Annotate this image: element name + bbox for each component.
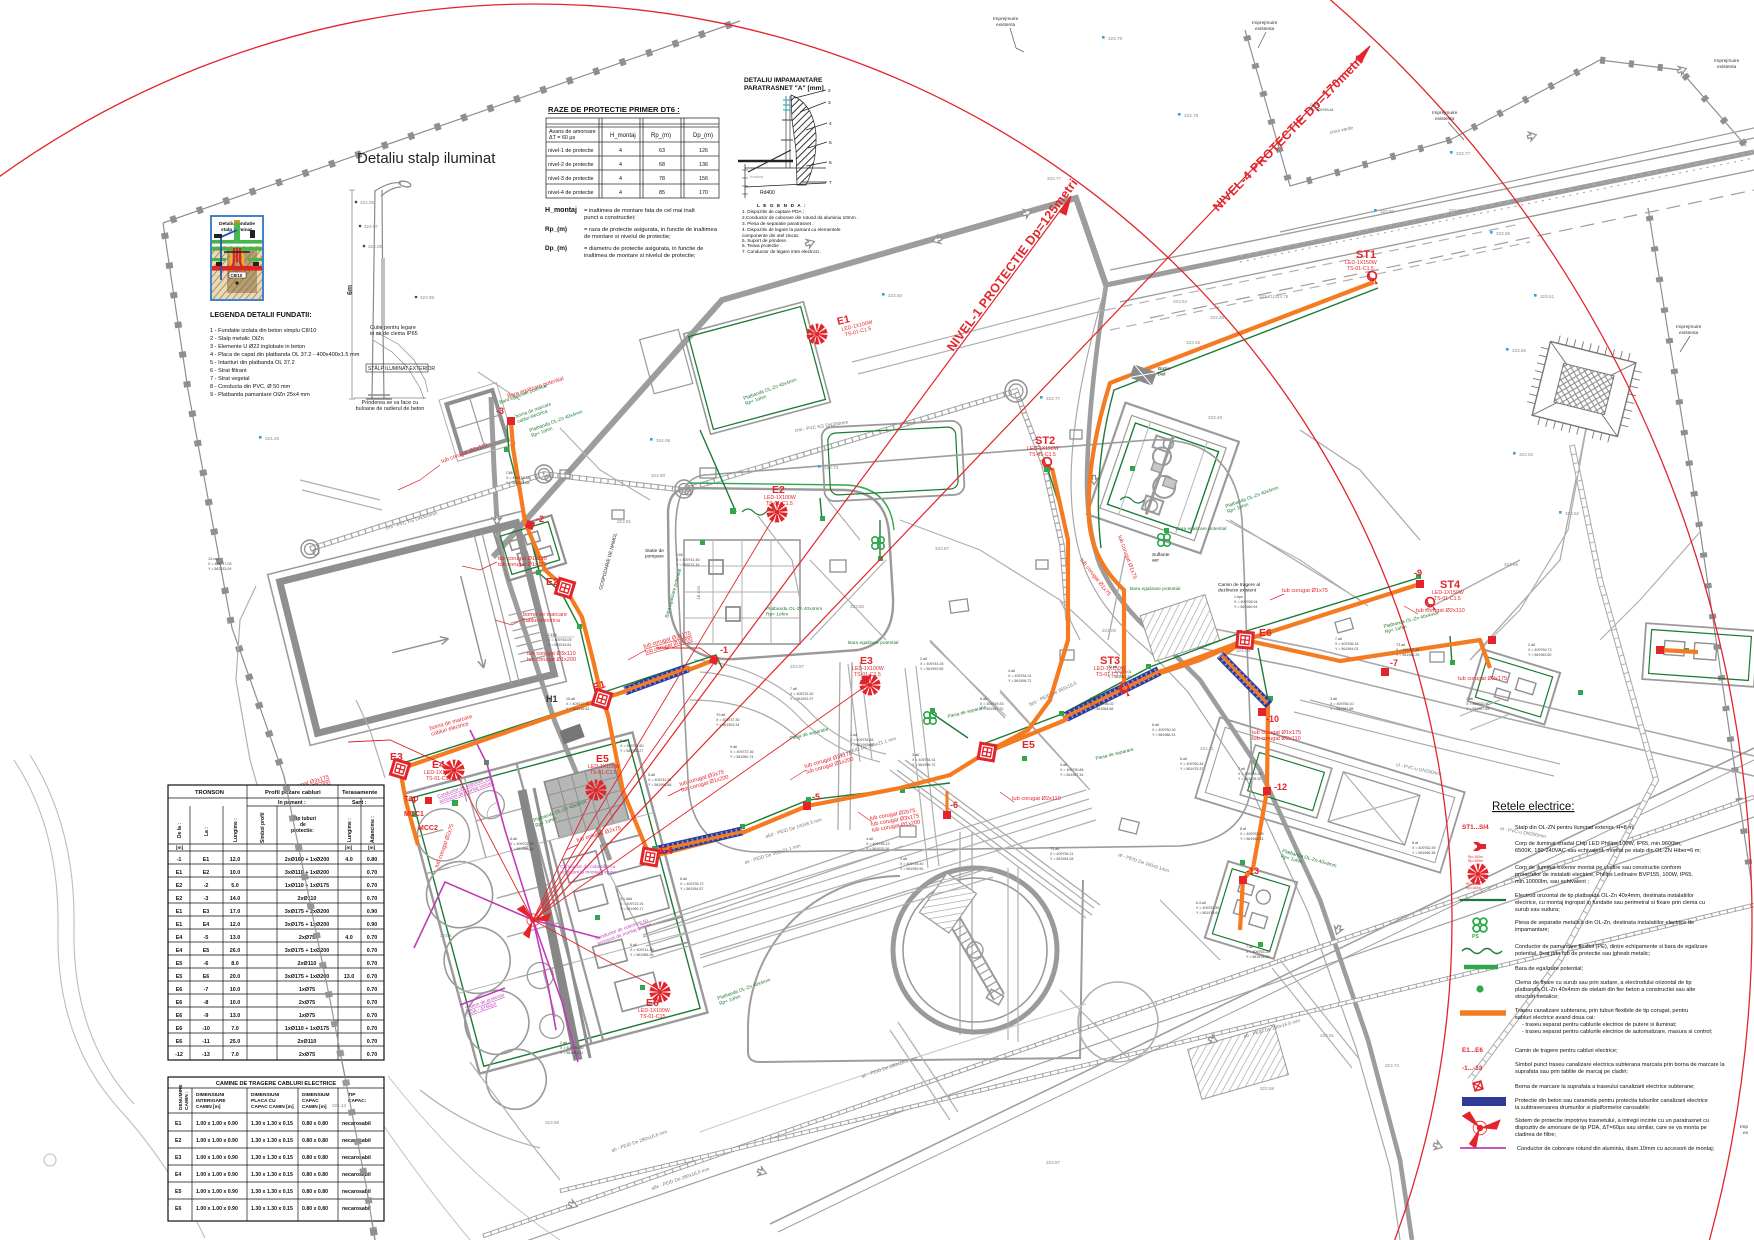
svg-text:X = 409760.44: X = 409760.44 [1180, 762, 1203, 766]
svg-text:Bazin: Bazin [1158, 366, 1170, 372]
svg-text:Y = 561954.28: Y = 561954.28 [1050, 857, 1073, 861]
svg-text:PS: PS [1472, 934, 1479, 940]
svg-text:E2: E2 [176, 883, 183, 889]
svg-text:tub corugat Ø1x75: tub corugat Ø1x75 [1282, 588, 1328, 594]
svg-text:323.91: 323.91 [1320, 1033, 1334, 1038]
svg-text:Clema de fixare cu surub sau p: Clema de fixare cu surub sau prin sudare… [1515, 980, 1692, 986]
svg-text:[m]: [m] [345, 845, 353, 850]
svg-text:31.a6: 31.a6 [1108, 665, 1117, 669]
svg-text:Rd400: Rd400 [760, 190, 775, 196]
svg-text:-1: -1 [177, 857, 182, 863]
svg-text:4: 4 [619, 176, 622, 182]
svg-text:CAMIN :: CAMIN : [184, 1091, 190, 1110]
svg-text:-7: -7 [1390, 658, 1398, 668]
svg-text:X = 409737.36: X = 409737.36 [730, 750, 753, 754]
svg-text:-10: -10 [202, 1026, 210, 1032]
svg-text:-11: -11 [202, 1039, 210, 1045]
svg-text:E2: E2 [175, 1138, 181, 1144]
svg-text:Conductor de coborare cu: Conductor de coborare cu [560, 864, 616, 870]
svg-text:6. Teava protectie .: 6. Teava protectie . [742, 243, 782, 248]
svg-text:3 - Elemente U Ø22 inglobate i: 3 - Elemente U Ø22 inglobate in beton [210, 344, 305, 350]
svg-text:TS-01-C1.5: TS-01-C1.5 [1029, 452, 1056, 458]
svg-text:X = 409718.33: X = 409718.33 [506, 476, 529, 480]
svg-text:E5: E5 [203, 948, 210, 954]
svg-text:-10: -10 [1266, 714, 1279, 724]
svg-text:4.0: 4.0 [345, 935, 353, 941]
svg-text:-2: -2 [204, 883, 209, 889]
svg-text:TS-01-C1.5: TS-01-C1.5 [766, 501, 793, 507]
svg-text:-12: -12 [1274, 782, 1287, 792]
svg-text:ST1...SI4: ST1...SI4 [1462, 824, 1489, 831]
svg-text:Y = 561991.07: Y = 561991.07 [790, 697, 813, 701]
svg-text:X = 409721.91: X = 409721.91 [620, 902, 643, 906]
svg-text:existenta: existenta [1435, 116, 1455, 122]
svg-text:electrice, cu montaj ingropat: electrice, cu montaj ingropat in fundati… [1515, 900, 1705, 906]
svg-text:Rp=160m: Rp=160m [1468, 859, 1483, 863]
svg-text:biol: biol [1158, 372, 1165, 378]
svg-text:Platbanda OL-Zn 40x4mm: Platbanda OL-Zn 40x4mm [766, 606, 822, 612]
svg-text:MCC1: MCC1 [404, 811, 424, 818]
svg-text:E6: E6 [175, 1206, 181, 1212]
svg-text:0.70: 0.70 [367, 883, 378, 889]
svg-text:TRONSON: TRONSON [195, 790, 224, 796]
svg-text:323.79: 323.79 [1108, 36, 1122, 41]
svg-text:ex: ex [1743, 1131, 1749, 1136]
svg-text:0.70: 0.70 [367, 1026, 378, 1032]
svg-text:7. Conductor de legare intre e: 7. Conductor de legare intre electrozi . [742, 249, 821, 254]
svg-text:X = 409737.30: X = 409737.30 [716, 718, 739, 722]
svg-text:DENUMIRE: DENUMIRE [178, 1084, 184, 1110]
svg-text:E2: E2 [546, 576, 559, 588]
svg-text:pompare: pompare [645, 554, 664, 560]
svg-text:323.80: 323.80 [1380, 209, 1394, 214]
svg-text:Y = 582015.81: Y = 582015.81 [548, 643, 571, 647]
svg-text:Y = 562033.09: Y = 562033.09 [208, 567, 231, 571]
svg-text:-9: -9 [204, 1013, 209, 1019]
svg-text:0.70: 0.70 [367, 987, 378, 993]
svg-text:Y = 582013.15: Y = 582013.15 [676, 563, 699, 567]
svg-text:-1: -1 [720, 645, 728, 655]
svg-text:cabluri electrice avand doua c: cabluri electrice avand doua cai: [1515, 1015, 1595, 1021]
svg-text:X = 409766.18: X = 409766.18 [1335, 642, 1358, 646]
svg-text:Y = 561988.29: Y = 561988.29 [1396, 653, 1419, 657]
svg-text:323.56: 323.56 [545, 1120, 559, 1125]
svg-text:E4: E4 [660, 845, 673, 857]
svg-text:Y = 561998.72: Y = 561998.72 [1008, 679, 1031, 683]
svg-text:-2: -2 [536, 514, 544, 524]
svg-text:85: 85 [659, 190, 665, 196]
svg-text:3: 3 [828, 100, 831, 106]
svg-text:potential, fixat prin tub de: potential, fixat prin tub de protectie s… [1515, 951, 1651, 957]
svg-text:7.a6: 7.a6 [1466, 697, 1473, 701]
svg-text:Bara egalizare potential: Bara egalizare potential [1176, 526, 1226, 532]
svg-text:1.00 x 1.00 x 0.90: 1.00 x 1.00 x 0.90 [196, 1206, 238, 1212]
svg-text:8.af: 8.af [1240, 827, 1246, 831]
svg-text:PLACA CU: PLACA CU [251, 1098, 276, 1104]
svg-text:INTERIOARE: INTERIOARE [196, 1098, 226, 1104]
svg-text:Traseu canalizare subterana,: Traseu canalizare subterana, prin tuburi… [1515, 1008, 1688, 1014]
svg-text:-3: -3 [496, 406, 504, 416]
svg-text:Stalp din OL-ZN pentru ilumina: Stalp din OL-ZN pentru iluminat exterior… [1515, 825, 1635, 831]
svg-text:tub corugat Ø2x175: tub corugat Ø2x175 [1458, 676, 1507, 682]
svg-text:1xØ75: 1xØ75 [299, 987, 315, 993]
svg-text:Y0.a6: Y0.a6 [716, 713, 725, 717]
svg-text:4.a6: 4.a6 [866, 837, 873, 841]
svg-text:ΔT = 60 μs: ΔT = 60 μs [549, 135, 576, 141]
svg-text:2xØ75: 2xØ75 [299, 935, 315, 941]
svg-text:X = 409741.91: X = 409741.91 [648, 778, 671, 782]
svg-text:Corp de iluminat exterior mont: Corp de iluminat exterior montat pe clad… [1515, 865, 1682, 871]
svg-text:TS-01-C1.5: TS-01-C1.5 [854, 672, 881, 678]
svg-text:X = 409750.84: X = 409750.84 [1060, 768, 1083, 772]
svg-text:323.62: 323.62 [1519, 452, 1533, 457]
svg-text:323.5: 323.5 [440, 933, 452, 938]
svg-text:X = 409783.64: X = 409783.64 [1310, 108, 1333, 112]
svg-text:Y = 561949.33: Y = 561949.33 [1240, 837, 1263, 841]
svg-text:8 - Conducta din PVC, Ø 50 mm: 8 - Conducta din PVC, Ø 50 mm [210, 384, 291, 390]
svg-text:X = 409763.09: X = 409763.09 [1240, 832, 1263, 836]
svg-text:E5: E5 [175, 1189, 181, 1195]
svg-text:Y = 562016.63: Y = 562016.63 [566, 707, 589, 711]
svg-text:4.a6: 4.a6 [900, 857, 907, 861]
svg-text:4.a6: 4.a6 [1008, 669, 1015, 673]
svg-text:De la :: De la : [177, 823, 183, 838]
svg-text:C164: C164 [548, 633, 557, 637]
svg-text:323.87: 323.87 [1046, 1160, 1060, 1165]
svg-text:Lungime :: Lungime : [347, 818, 353, 842]
svg-text:4 - Placa de capat din platban: 4 - Placa de capat din platbanda OL 37.2… [210, 352, 360, 358]
svg-text:DIMENSIUM: DIMENSIUM [302, 1092, 329, 1098]
svg-text:structuri metalice;: structuri metalice; [1515, 994, 1559, 1000]
svg-text:Y = 581993.66: Y = 581993.66 [648, 783, 671, 787]
svg-text:tub corugat Ø1x200: tub corugat Ø1x200 [527, 657, 576, 663]
svg-text:aer: aer [1152, 558, 1159, 564]
svg-text:TS-01-C1.5: TS-01-C1.5 [590, 770, 617, 776]
svg-text:-12: -12 [175, 1052, 183, 1058]
svg-text:E3: E3 [175, 1155, 181, 1161]
svg-text:6.a6: 6.a6 [1152, 723, 1159, 727]
svg-text:X = 409744.25: X = 409744.25 [920, 662, 943, 666]
svg-text:324.05: 324.05 [368, 244, 382, 249]
svg-text:323.74: 323.74 [1385, 1063, 1399, 1068]
svg-text:324.00: 324.00 [1102, 628, 1116, 633]
svg-text:16.cmi: 16.cmi [696, 586, 702, 600]
svg-text:322.71|323.75: 322.71|323.75 [1259, 294, 1289, 299]
svg-text:2: 2 [828, 88, 831, 94]
svg-text:0.90: 0.90 [367, 922, 378, 928]
svg-text:323.99: 323.99 [420, 295, 434, 300]
svg-text:min.10000lm, sau echivalent ;: min.10000lm, sau echivalent ; [1515, 879, 1589, 885]
svg-text:nivel-1 de protectie: nivel-1 de protectie [548, 148, 594, 154]
svg-text:Dp_(m): Dp_(m) [693, 133, 713, 139]
svg-text:Y = 561984.03: Y = 561984.03 [1335, 647, 1358, 651]
svg-text:Y = 581984.27: Y = 581984.27 [620, 749, 643, 753]
svg-text:Corp de iluminat stradal Chip: Corp de iluminat stradal Chip LED Philip… [1515, 841, 1682, 847]
svg-text:necarosabil: necarosabil [342, 1155, 371, 1161]
svg-text:1.30 x 1.30 x 0.15: 1.30 x 1.30 x 0.15 [251, 1138, 293, 1144]
svg-text:= diametru de protectie asigur: = diametru de protectie asigurata, in fu… [584, 246, 703, 252]
svg-text:9.a6: 9.a6 [730, 745, 737, 749]
svg-text:E1: E1 [175, 1121, 181, 1127]
svg-text:Profil pozare cabluri: Profil pozare cabluri [265, 790, 321, 796]
svg-text:existenta: existenta [1255, 26, 1275, 32]
svg-text:3xØ175 + 1xØ200: 3xØ175 + 1xØ200 [285, 974, 330, 980]
svg-text:7: 7 [829, 180, 832, 186]
svg-text:X = 409726.72: X = 409726.72 [680, 882, 703, 886]
svg-text:C48: C48 [676, 553, 683, 557]
svg-text:Imprejmuire: Imprejmuire [993, 16, 1019, 22]
svg-text:E1: E1 [203, 857, 210, 863]
svg-text:0.70: 0.70 [367, 896, 378, 902]
svg-text:0.70: 0.70 [367, 1013, 378, 1019]
svg-text:Y = 581987.88: Y = 581987.88 [1330, 707, 1353, 711]
svg-text:X = 409767.82: X = 409767.82 [1196, 906, 1219, 910]
svg-text:[m]: [m] [368, 845, 376, 850]
svg-text:X = 409763.60: X = 409763.60 [1466, 702, 1489, 706]
svg-text:323.77: 323.77 [1456, 151, 1470, 156]
svg-text:323.55: 323.55 [1512, 348, 1526, 353]
svg-text:X = 409759.01: X = 409759.01 [1108, 670, 1131, 674]
svg-text:X = 409763.26: X = 409763.26 [1246, 950, 1269, 954]
svg-text:323.77: 323.77 [1047, 176, 1061, 181]
svg-text:dispozitiv de amorsare de tip: dispozitiv de amorsare de tip PDA, ΔT=60… [1515, 1125, 1707, 1131]
svg-text:buloane de radierul de beton: buloane de radierul de beton [356, 406, 425, 412]
svg-text:0.80: 0.80 [367, 857, 378, 863]
svg-text:4: 4 [619, 190, 622, 196]
svg-text:1.30 x 1.30 x 0.15: 1.30 x 1.30 x 0.15 [251, 1155, 293, 1161]
svg-text:Y = 561978.64: Y = 561978.64 [1196, 911, 1219, 915]
svg-text:3xØ175 + 1xØ200: 3xØ175 + 1xØ200 [285, 948, 330, 954]
svg-text:-3: -3 [204, 896, 209, 902]
svg-text:1.30 x 1.30 x 0.15: 1.30 x 1.30 x 0.15 [251, 1189, 293, 1195]
svg-text:T1.a6: T1.a6 [1050, 847, 1059, 851]
svg-text:9 - Platbanda pamantare OlZn 2: 9 - Platbanda pamantare OlZn 25x4 mm [210, 392, 310, 398]
svg-text:Y = 581988.33: Y = 581988.33 [1152, 733, 1175, 737]
svg-text:2xØ160 + 1xØ200: 2xØ160 + 1xØ200 [285, 857, 330, 863]
svg-text:3xØ175 + 1xØ200: 3xØ175 + 1xØ200 [285, 922, 330, 928]
svg-text:X = 409762.39: X = 409762.39 [1412, 846, 1435, 850]
svg-text:0.70: 0.70 [367, 935, 378, 941]
svg-text:Y = 561967.69: Y = 561967.69 [1466, 707, 1489, 711]
svg-text:E1...E6: E1...E6 [1462, 1047, 1483, 1054]
svg-text:3.a6: 3.a6 [1330, 697, 1337, 701]
svg-text:Conductor de pamantare flexibi: Conductor de pamantare flexibil (PE), di… [1515, 944, 1708, 950]
svg-text:X = 409734.31: X = 409734.31 [912, 758, 935, 762]
svg-text:impamantare;: impamantare; [1515, 927, 1550, 933]
svg-text:CAMINE DE TRAGERE CABLURI ELEC: CAMINE DE TRAGERE CABLURI ELECTRICE [216, 1081, 337, 1087]
svg-text:Simbol punct traseu canalizare: Simbol punct traseu canalizare electrica… [1515, 1062, 1725, 1068]
svg-text:-13: -13 [1246, 866, 1259, 876]
svg-text:Y = 561987.34: Y = 561987.34 [1060, 773, 1083, 777]
svg-text:X = 409739.30: X = 409739.30 [560, 1046, 583, 1050]
svg-text:68: 68 [659, 162, 665, 168]
svg-text:Y = 561959.90: Y = 561959.90 [900, 867, 923, 871]
svg-text:323.52: 323.52 [1173, 299, 1187, 304]
svg-text:2.a6: 2.a6 [560, 1041, 567, 1045]
svg-text:Terasamente: Terasamente [342, 790, 378, 796]
svg-text:E4: E4 [176, 948, 183, 954]
svg-text:7.a6: 7.a6 [1238, 767, 1245, 771]
svg-text:Y = 562023.68: Y = 562023.68 [506, 481, 529, 485]
svg-text:-6: -6 [950, 800, 958, 810]
svg-text:tub corugat Ø2x110: tub corugat Ø2x110 [1252, 736, 1301, 742]
svg-text:[m]: [m] [176, 845, 184, 850]
svg-text:RAZE DE PROTECTIE PRIMER DT6 :: RAZE DE PROTECTIE PRIMER DT6 : [548, 105, 680, 114]
svg-text:X = 409769.73: X = 409769.73 [1528, 648, 1551, 652]
svg-text:0.70: 0.70 [367, 948, 378, 954]
svg-text:PARATRASNET "A" [mm]: PARATRASNET "A" [mm] [744, 85, 824, 92]
svg-text:20.0: 20.0 [230, 974, 241, 980]
svg-text:Dp_(m): Dp_(m) [545, 245, 567, 252]
svg-text:E6: E6 [176, 987, 183, 993]
svg-text:STÂLP ILUMINAT EXTERIOR: STÂLP ILUMINAT EXTERIOR [368, 365, 435, 372]
svg-text:accesorii la montaj incluse: accesorii la montaj incluse [560, 870, 616, 876]
svg-text:X = 409702.39: X = 409702.39 [510, 842, 533, 846]
svg-text:X = 409731.62: X = 409731.62 [790, 692, 813, 696]
svg-text:LEGENDA DETALII FUNDATII:: LEGENDA DETALII FUNDATII: [210, 310, 312, 319]
svg-text:In pamant :: In pamant : [278, 800, 306, 806]
svg-text:Y = 581960.74: Y = 581960.74 [730, 755, 753, 759]
svg-text:Protectie din beton sau carami: Protectie din beton sau caramida pentru … [1515, 1098, 1708, 1104]
svg-text:E1: E1 [176, 922, 183, 928]
svg-text:E2: E2 [203, 870, 210, 876]
svg-text:Piesa de separatie metalica di: Piesa de separatie metalica din OL-Zn, d… [1515, 920, 1694, 926]
svg-text:5.a6: 5.a6 [648, 773, 655, 777]
svg-text:Y = 561984.58: Y = 561984.58 [1090, 707, 1113, 711]
svg-text:Conductor de coborare rotund d: Conductor de coborare rotund din alumini… [1517, 1146, 1715, 1152]
svg-text:X = 409753.09: X = 409753.09 [548, 638, 571, 642]
svg-text:E3: E3 [203, 909, 210, 915]
svg-text:DIMENSIUNI: DIMENSIUNI [251, 1092, 280, 1098]
svg-text:tub corugat Ø2x110: tub corugat Ø2x110 [1012, 796, 1061, 802]
svg-text:TS-01-C1.5: TS-01-C1.5 [426, 776, 453, 782]
svg-text:323.73: 323.73 [824, 465, 838, 470]
svg-text:3xØ175 + 2xØ200: 3xØ175 + 2xØ200 [285, 909, 330, 915]
svg-text:8.a6: 8.a6 [510, 837, 517, 841]
svg-text:8.a6: 8.a6 [980, 697, 987, 701]
svg-text:platbanda OL-Zn 40x4mm de otel: platbanda OL-Zn 40x4mm de otelarii din f… [1515, 987, 1695, 993]
svg-text:-5: -5 [204, 935, 209, 941]
svg-text:E6: E6 [1259, 627, 1272, 639]
svg-text:TS-01-C1.5: TS-01-C1.5 [1434, 596, 1461, 602]
svg-text:cladirea de filtre;: cladirea de filtre; [1515, 1132, 1556, 1138]
svg-text:Detaliu stalp iluminat: Detaliu stalp iluminat [357, 150, 496, 167]
svg-text:Bara de egalizare potential;: Bara de egalizare potential; [1515, 966, 1584, 972]
svg-text:8.af: 8.af [1412, 841, 1418, 845]
svg-text:E5: E5 [176, 961, 183, 967]
svg-text:2.a6: 2.a6 [1528, 643, 1535, 647]
svg-text:Adancime :: Adancime : [370, 816, 376, 843]
svg-text:0.80 x 0.80: 0.80 x 0.80 [302, 1121, 328, 1127]
svg-text:6.3.a6: 6.3.a6 [1196, 901, 1206, 905]
svg-text:2xØ110: 2xØ110 [298, 896, 317, 902]
svg-text:7.a6: 7.a6 [1246, 945, 1253, 949]
svg-text:7.0: 7.0 [231, 1052, 239, 1058]
svg-text:4: 4 [829, 121, 832, 127]
svg-text:Y = 561969.36: Y = 561969.36 [510, 847, 533, 851]
svg-text:-6: -6 [204, 961, 209, 967]
svg-text:323.79: 323.79 [1184, 113, 1198, 118]
svg-text:324.05: 324.05 [360, 200, 374, 205]
svg-text:7 - Strat vegetal: 7 - Strat vegetal [210, 376, 250, 382]
svg-text:7.a6: 7.a6 [1335, 637, 1342, 641]
svg-text:tub corugat Ø2x110: tub corugat Ø2x110 [1416, 608, 1465, 614]
svg-text:10.0: 10.0 [230, 987, 241, 993]
svg-text:Suflante: Suflante [1152, 552, 1170, 558]
svg-text:X = 409754.31: X = 409754.31 [1008, 674, 1031, 678]
svg-text:14.0: 14.0 [230, 896, 241, 902]
svg-text:323.58: 323.58 [1260, 1086, 1274, 1091]
svg-text:Simbol profil: Simbol profil [260, 812, 266, 843]
svg-text:TS-01-C15: TS-01-C15 [640, 1014, 665, 1020]
svg-text:E6: E6 [176, 1000, 183, 1006]
svg-text:1.00 x 1.00 x 0.90: 1.00 x 1.00 x 0.90 [196, 1138, 238, 1144]
svg-text:Rp=160m: Rp=160m [1466, 886, 1481, 890]
svg-text:2xØ75: 2xØ75 [299, 1052, 315, 1058]
svg-text:-9: -9 [1414, 568, 1422, 578]
svg-text:2.Conductor de coborare din ro: 2.Conductor de coborare din rotund da al… [742, 215, 858, 220]
svg-text:156: 156 [699, 176, 708, 182]
svg-text:nivel-4 de protectie: nivel-4 de protectie [548, 190, 594, 196]
svg-text:X = 409734.46: X = 409734.46 [850, 738, 873, 742]
svg-text:X = 409717.03: X = 409717.03 [208, 562, 231, 566]
svg-text:nivel-3 de protectie: nivel-3 de protectie [548, 176, 594, 182]
svg-text:Y = 561975.37: Y = 561975.37 [1180, 767, 1203, 771]
svg-text:X = 409763.26: X = 409763.26 [1238, 772, 1261, 776]
svg-text:Borna de marcare la suprafata: Borna de marcare la suprafata a traseulu… [1515, 1084, 1695, 1090]
svg-text:78: 78 [659, 176, 665, 182]
svg-text:6500K, 180-240VAC sau echivale: 6500K, 180-240VAC sau echivalent, montat… [1515, 848, 1701, 854]
svg-text:1.00 x 1.00 x 0.90: 1.00 x 1.00 x 0.90 [196, 1155, 238, 1161]
svg-text:2.a6: 2.a6 [920, 657, 927, 661]
svg-text:E4: E4 [203, 922, 210, 928]
svg-text:2xØ75: 2xØ75 [299, 1000, 315, 1006]
svg-text:323.51: 323.51 [1540, 294, 1554, 299]
svg-text:proiectelor de instalatii elec: proiectelor de instalatii electrice, Phi… [1515, 872, 1693, 878]
svg-text:la subtraversarea drumurilor s: la subtraversarea drumurilor si platform… [1515, 1105, 1651, 1111]
svg-text:TS-01-C1.5: TS-01-C1.5 [1347, 266, 1374, 272]
svg-text:2xØ110: 2xØ110 [298, 961, 317, 967]
svg-text:323.80: 323.80 [888, 293, 902, 298]
svg-text:4. Dispozitiv de legare la pam: 4. Dispozitiv de legare la pamant cu ele… [742, 227, 841, 232]
svg-text:X = 409717.30: X = 409717.30 [566, 702, 589, 706]
svg-text:15.a6: 15.a6 [566, 697, 575, 701]
svg-text:X = 409767.84: X = 409767.84 [1396, 648, 1419, 652]
svg-text:Rp_(m): Rp_(m) [651, 133, 671, 139]
svg-text:Camin de tragere pentru cablu: Camin de tragere pentru cabluri electric… [1515, 1048, 1618, 1054]
svg-text:CAPAC CAMIN [m]: CAPAC CAMIN [m] [251, 1104, 294, 1110]
svg-text:4: 4 [619, 148, 622, 154]
svg-text:Imprejmuire: Imprejmuire [1252, 20, 1278, 26]
svg-text:324.11: 324.11 [1200, 746, 1214, 751]
svg-text:-13: -13 [202, 1052, 210, 1058]
svg-text:6.a6: 6.a6 [630, 943, 637, 947]
svg-text:5: 5 [829, 140, 832, 146]
svg-text:Camin de tragere al: Camin de tragere al [1218, 582, 1260, 588]
svg-text:X = 409760.16: X = 409760.16 [1152, 728, 1175, 732]
svg-text:E6: E6 [176, 1013, 183, 1019]
svg-text:E6: E6 [176, 1039, 183, 1045]
svg-text:CAMIN [m]: CAMIN [m] [196, 1104, 221, 1110]
svg-text:dezlinesn existent: dezlinesn existent [1218, 588, 1257, 594]
svg-text:E4: E4 [176, 935, 183, 941]
svg-text:Rp_(m): Rp_(m) [545, 226, 567, 233]
svg-text:Bara egalizare potential: Bara egalizare potential [848, 640, 898, 646]
svg-text:7.a6: 7.a6 [790, 687, 797, 691]
svg-text:T&D: T&D [404, 796, 418, 803]
svg-text:25.0: 25.0 [230, 1039, 241, 1045]
svg-text:Y = 587678.20: Y = 587678.20 [1246, 955, 1269, 959]
